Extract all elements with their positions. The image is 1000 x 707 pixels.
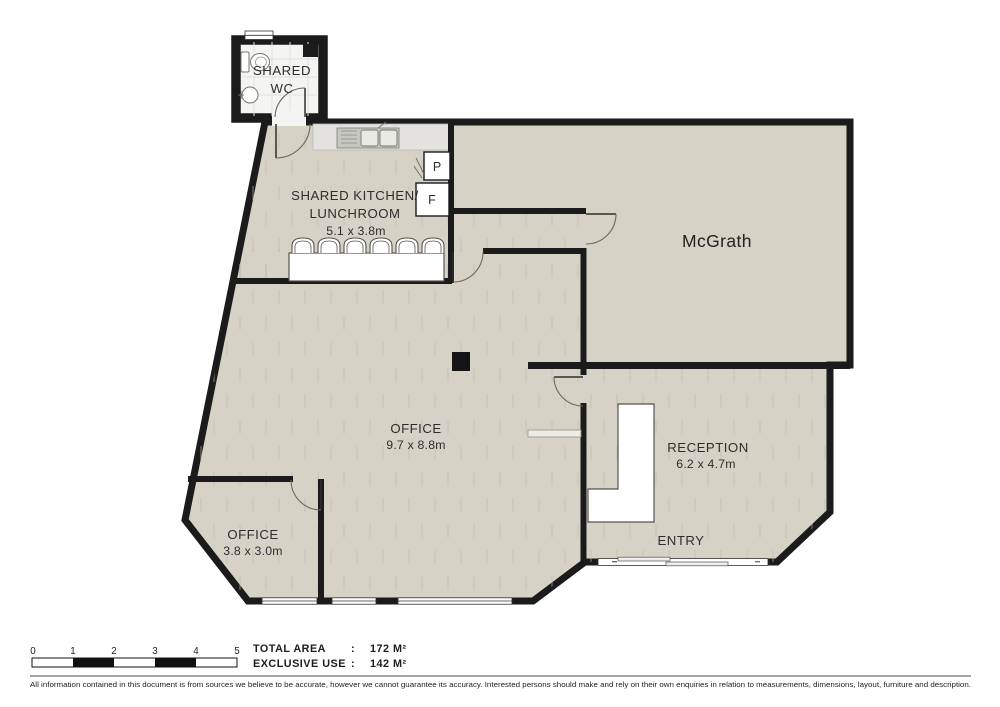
- room-label: SHARED KITCHEN/: [291, 188, 419, 203]
- total-area-value: 172 M²: [370, 643, 407, 655]
- chair-icon: [344, 238, 366, 253]
- room-label: WC: [271, 81, 294, 96]
- room-dims: 3.8 x 3.0m: [223, 544, 282, 558]
- room-dims: 6.2 x 4.7m: [676, 457, 735, 471]
- scale-tick: 3: [152, 646, 158, 657]
- lunch-table: [289, 253, 444, 281]
- room-dims: 9.7 x 8.8m: [386, 438, 445, 452]
- wc-door-gap: [272, 111, 306, 126]
- wc-room: [236, 31, 323, 126]
- room-label: SHARED: [253, 63, 311, 78]
- pantry-label: P: [433, 160, 441, 174]
- scale-tick: 4: [193, 646, 199, 657]
- office-shelf: [528, 430, 581, 437]
- disclaimer-text: All information contained in this docume…: [30, 680, 971, 689]
- scale-tick: 1: [70, 646, 75, 657]
- total-area-label: TOTAL AREA: [253, 643, 326, 655]
- exclusive-use-value: 142 M²: [370, 658, 407, 670]
- separator: :: [351, 643, 355, 655]
- scale-tick: 0: [30, 646, 36, 657]
- chair-icon: [292, 238, 314, 253]
- scale-tick: 2: [111, 646, 116, 657]
- fridge-box: F: [416, 183, 449, 216]
- room-label: LUNCHROOM: [310, 206, 401, 221]
- chair-icon: [370, 238, 392, 253]
- scale-tick: 5: [234, 646, 240, 657]
- room-label: OFFICE: [227, 527, 278, 542]
- room-dims: 5.1 x 3.8m: [326, 224, 385, 238]
- window-office-3: [398, 598, 512, 604]
- structural-column: [452, 352, 470, 371]
- exclusive-use-label: EXCLUSIVE USE: [253, 658, 346, 670]
- room-label-entry: ENTRY: [658, 533, 705, 548]
- window-entry-sliding-door: [598, 557, 768, 566]
- fridge-label: F: [428, 193, 436, 207]
- chair-icon: [396, 238, 418, 253]
- floor-plan-page: P F: [0, 0, 1000, 707]
- floor-plan-svg: P F: [0, 0, 1000, 707]
- wc-window: [245, 31, 273, 40]
- separator: :: [351, 658, 355, 670]
- room-label: RECEPTION: [667, 440, 748, 455]
- chair-icon: [318, 238, 340, 253]
- window-office-1: [262, 598, 317, 604]
- room-label-mcgrath: McGrath: [682, 231, 752, 251]
- chair-icon: [422, 238, 444, 253]
- window-office-2: [332, 598, 376, 604]
- area-summary: TOTAL AREA : 172 M² EXCLUSIVE USE : 142 …: [253, 643, 407, 670]
- wc-wall-notch: [303, 44, 318, 57]
- room-label: OFFICE: [390, 421, 441, 436]
- scale-bar: 0 1 2 3 4 5: [30, 646, 240, 667]
